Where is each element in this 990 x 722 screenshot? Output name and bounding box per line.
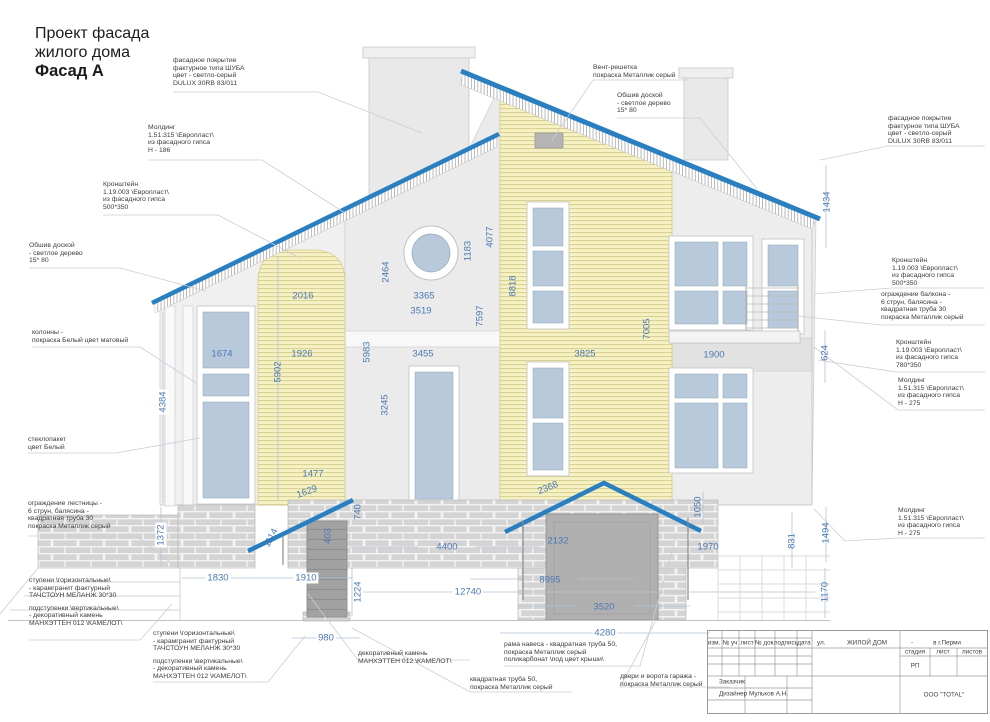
tb-stage-label: стадия [905, 649, 925, 656]
tb-col-list: лист [740, 640, 753, 647]
tb-sheets-label: листов [962, 649, 982, 656]
tb-dash: - [911, 640, 913, 647]
elevation-drawing [0, 0, 990, 722]
siding-panel-left [258, 250, 345, 505]
window-round [404, 226, 458, 280]
tb-col-podpis: подпись [774, 640, 798, 647]
title-line-2: жилого дома [35, 43, 149, 62]
window-right-lower [669, 368, 753, 473]
tb-col-uch: № уч [723, 640, 738, 647]
garage-door [546, 514, 658, 620]
stairs-left [0, 568, 180, 620]
window-center-tall [409, 366, 459, 505]
title-line-3: Фасад А [35, 62, 149, 82]
tb-city: в г.Перми [933, 640, 961, 647]
window-left [197, 306, 255, 504]
tb-customer: Заказчик [719, 679, 745, 686]
title-line-1: Проект фасада [35, 24, 149, 43]
tb-company: ООО "TOTAL" [924, 692, 965, 699]
window-gable-lower [527, 362, 569, 476]
entrance-door [307, 521, 347, 617]
window-gable-upper [527, 202, 569, 329]
stairs-right [718, 505, 830, 620]
tb-stage-value: РП [911, 663, 920, 670]
tb-project: ЖИЛОЙ ДОМ [847, 640, 887, 647]
facade-drawing-page: Проект фасада жилого дома Фасад А фасадн… [0, 0, 990, 722]
tb-col-dok: № док. [755, 640, 775, 647]
drawing-title: Проект фасада жилого дома Фасад А [35, 24, 149, 82]
vent-grate [535, 133, 563, 148]
title-block: изм. № уч лист № док. подпись дата ул. Ж… [707, 630, 988, 714]
tb-designer-name: Мульков А.Н. [749, 691, 788, 698]
window-right-upper [669, 236, 753, 330]
tb-designer: Дизайнер [719, 691, 747, 698]
tb-sheet-label: лист [936, 649, 949, 656]
tb-col-izm: изм. [708, 640, 720, 647]
tb-col-data: дата [797, 640, 810, 647]
tb-street: ул. [817, 640, 825, 647]
chimney-right [679, 68, 733, 160]
